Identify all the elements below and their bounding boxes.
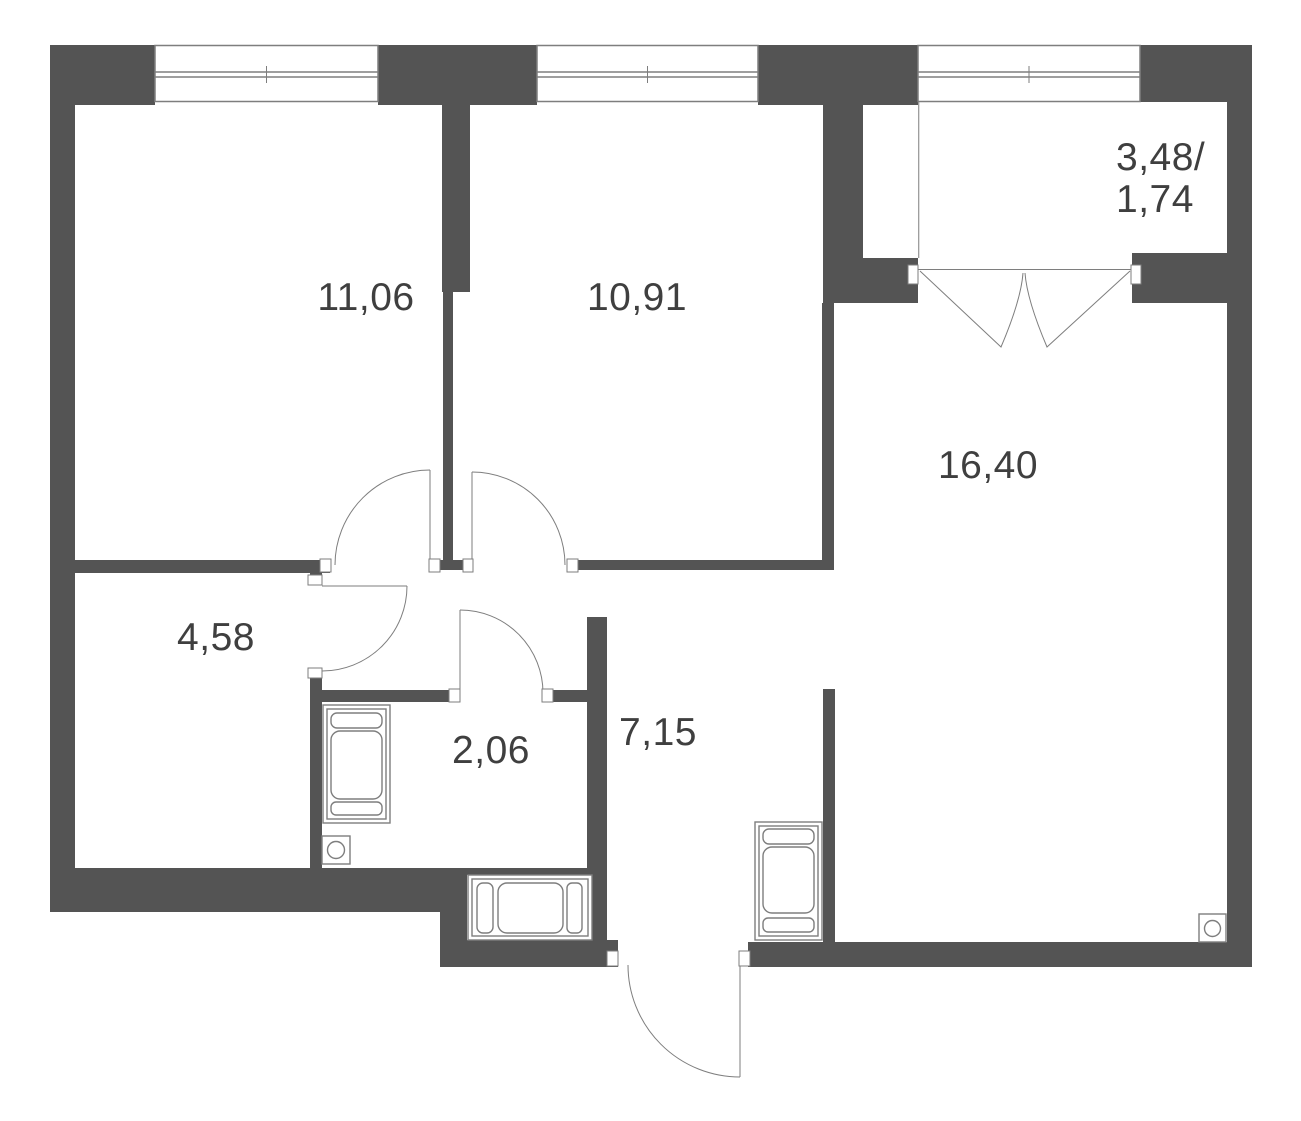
wall-hall-1640-partition	[823, 689, 835, 942]
hallway-cabinet-icon	[755, 822, 822, 940]
wall-left	[50, 45, 75, 912]
door-jambs	[308, 265, 1141, 966]
door-room-11-06	[335, 470, 430, 565]
room-labels: 11,06 10,91 16,40 4,58 2,06 7,15 3,48/ 1…	[177, 136, 1205, 772]
label-room-4-58: 4,58	[177, 616, 255, 659]
jamb	[320, 559, 331, 572]
jamb	[908, 265, 918, 284]
jamb	[308, 668, 322, 678]
jamb	[308, 575, 322, 585]
wall-bottom-connector	[440, 912, 467, 967]
wall-center-thick	[442, 105, 470, 292]
wall-bathroom-top-left	[322, 690, 453, 702]
jamb	[429, 559, 440, 572]
door-balcony-double	[918, 270, 1132, 348]
jamb	[449, 689, 460, 702]
washing-machine-icon	[323, 705, 390, 823]
wall-bathroom-top-right	[551, 690, 607, 702]
jamb	[607, 951, 618, 966]
wall-hall-top-right	[568, 560, 833, 570]
wall-1091-1640-thick	[823, 105, 863, 303]
window-room-10-91	[537, 46, 758, 102]
label-balcony-line1: 3,48/	[1116, 136, 1205, 179]
label-room-16-40: 16,40	[938, 444, 1038, 487]
wall-niche-top-strip	[467, 868, 588, 875]
window-room-11-06	[155, 46, 378, 102]
wall-balcony-stub-right	[1132, 253, 1228, 303]
jamb	[739, 951, 750, 966]
door-entry	[628, 965, 740, 1077]
door-room-4-58	[322, 586, 407, 671]
walls	[50, 45, 1252, 967]
kitchen-sink-icon	[1199, 914, 1226, 942]
floor-plan-page: 11,06 10,91 16,40 4,58 2,06 7,15 3,48/ 1…	[0, 0, 1301, 1121]
bathroom-sink-icon	[322, 836, 350, 864]
label-room-7-15: 7,15	[619, 711, 697, 754]
wall-right	[1227, 45, 1252, 967]
bathtub-icon	[468, 875, 592, 940]
door-room-10-91	[472, 472, 565, 565]
jamb	[463, 559, 473, 572]
label-room-10-91: 10,91	[587, 276, 687, 319]
jamb	[542, 689, 553, 702]
door-bathroom	[460, 610, 543, 693]
label-room-2-06: 2,06	[452, 729, 530, 772]
jamb	[1131, 265, 1141, 284]
wall-bottom-left	[50, 868, 467, 912]
wall-room458-right-lower	[310, 670, 322, 868]
wall-top-pillar-b	[758, 45, 918, 105]
label-balcony-line2: 1,74	[1116, 178, 1194, 221]
window-balcony-glazing	[918, 46, 1140, 259]
wall-room458-top	[72, 560, 330, 573]
label-room-11-06: 11,06	[317, 276, 414, 319]
wall-bottom-right	[748, 942, 1252, 967]
windows	[155, 46, 1140, 259]
jamb	[567, 559, 578, 572]
wall-1091-1640-thin	[822, 303, 834, 570]
floor-plan: 11,06 10,91 16,40 4,58 2,06 7,15 3,48/ 1…	[0, 0, 1301, 1121]
wall-center-thin	[443, 292, 453, 560]
wall-top-pillar-a	[378, 45, 537, 105]
